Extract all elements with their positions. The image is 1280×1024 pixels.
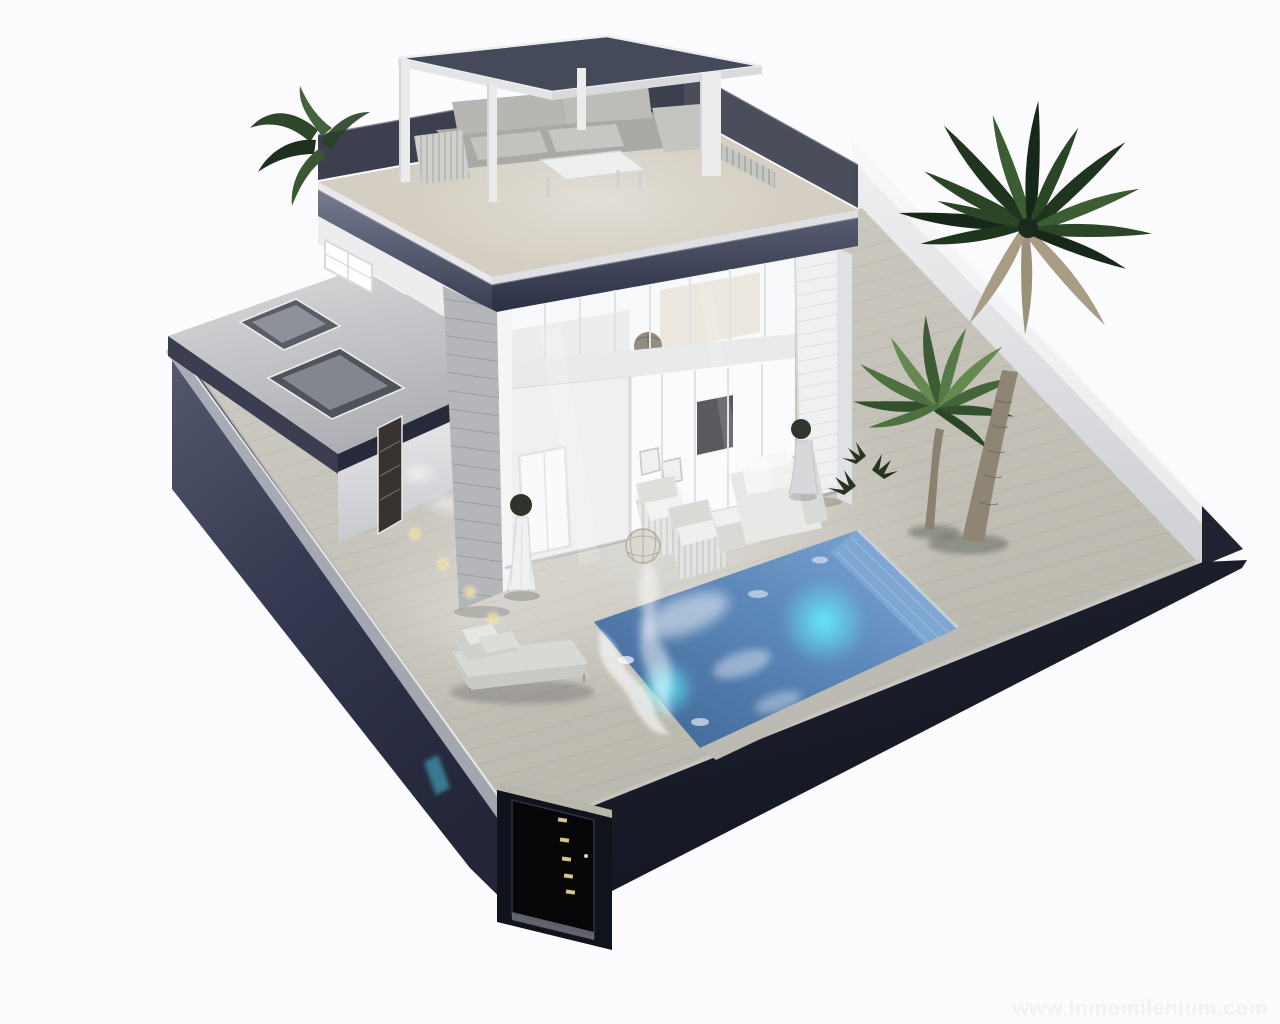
ground-light bbox=[461, 583, 479, 601]
villa-render: www.inmomilenium.com bbox=[0, 0, 1280, 1024]
ground-light bbox=[406, 525, 424, 543]
topiary-ball bbox=[510, 494, 532, 516]
house-rear-edge bbox=[837, 248, 852, 505]
entrance-gate bbox=[497, 782, 612, 950]
wicker-ball-lantern bbox=[626, 529, 660, 563]
underwater-light bbox=[780, 578, 868, 666]
side-door bbox=[378, 416, 402, 534]
topiary-ball bbox=[791, 419, 811, 439]
watermark-text: www.inmomilenium.com bbox=[1012, 997, 1268, 1020]
ground-light bbox=[484, 609, 502, 627]
ground-light bbox=[434, 555, 452, 573]
render-canvas: www.inmomilenium.com bbox=[0, 0, 1280, 1024]
